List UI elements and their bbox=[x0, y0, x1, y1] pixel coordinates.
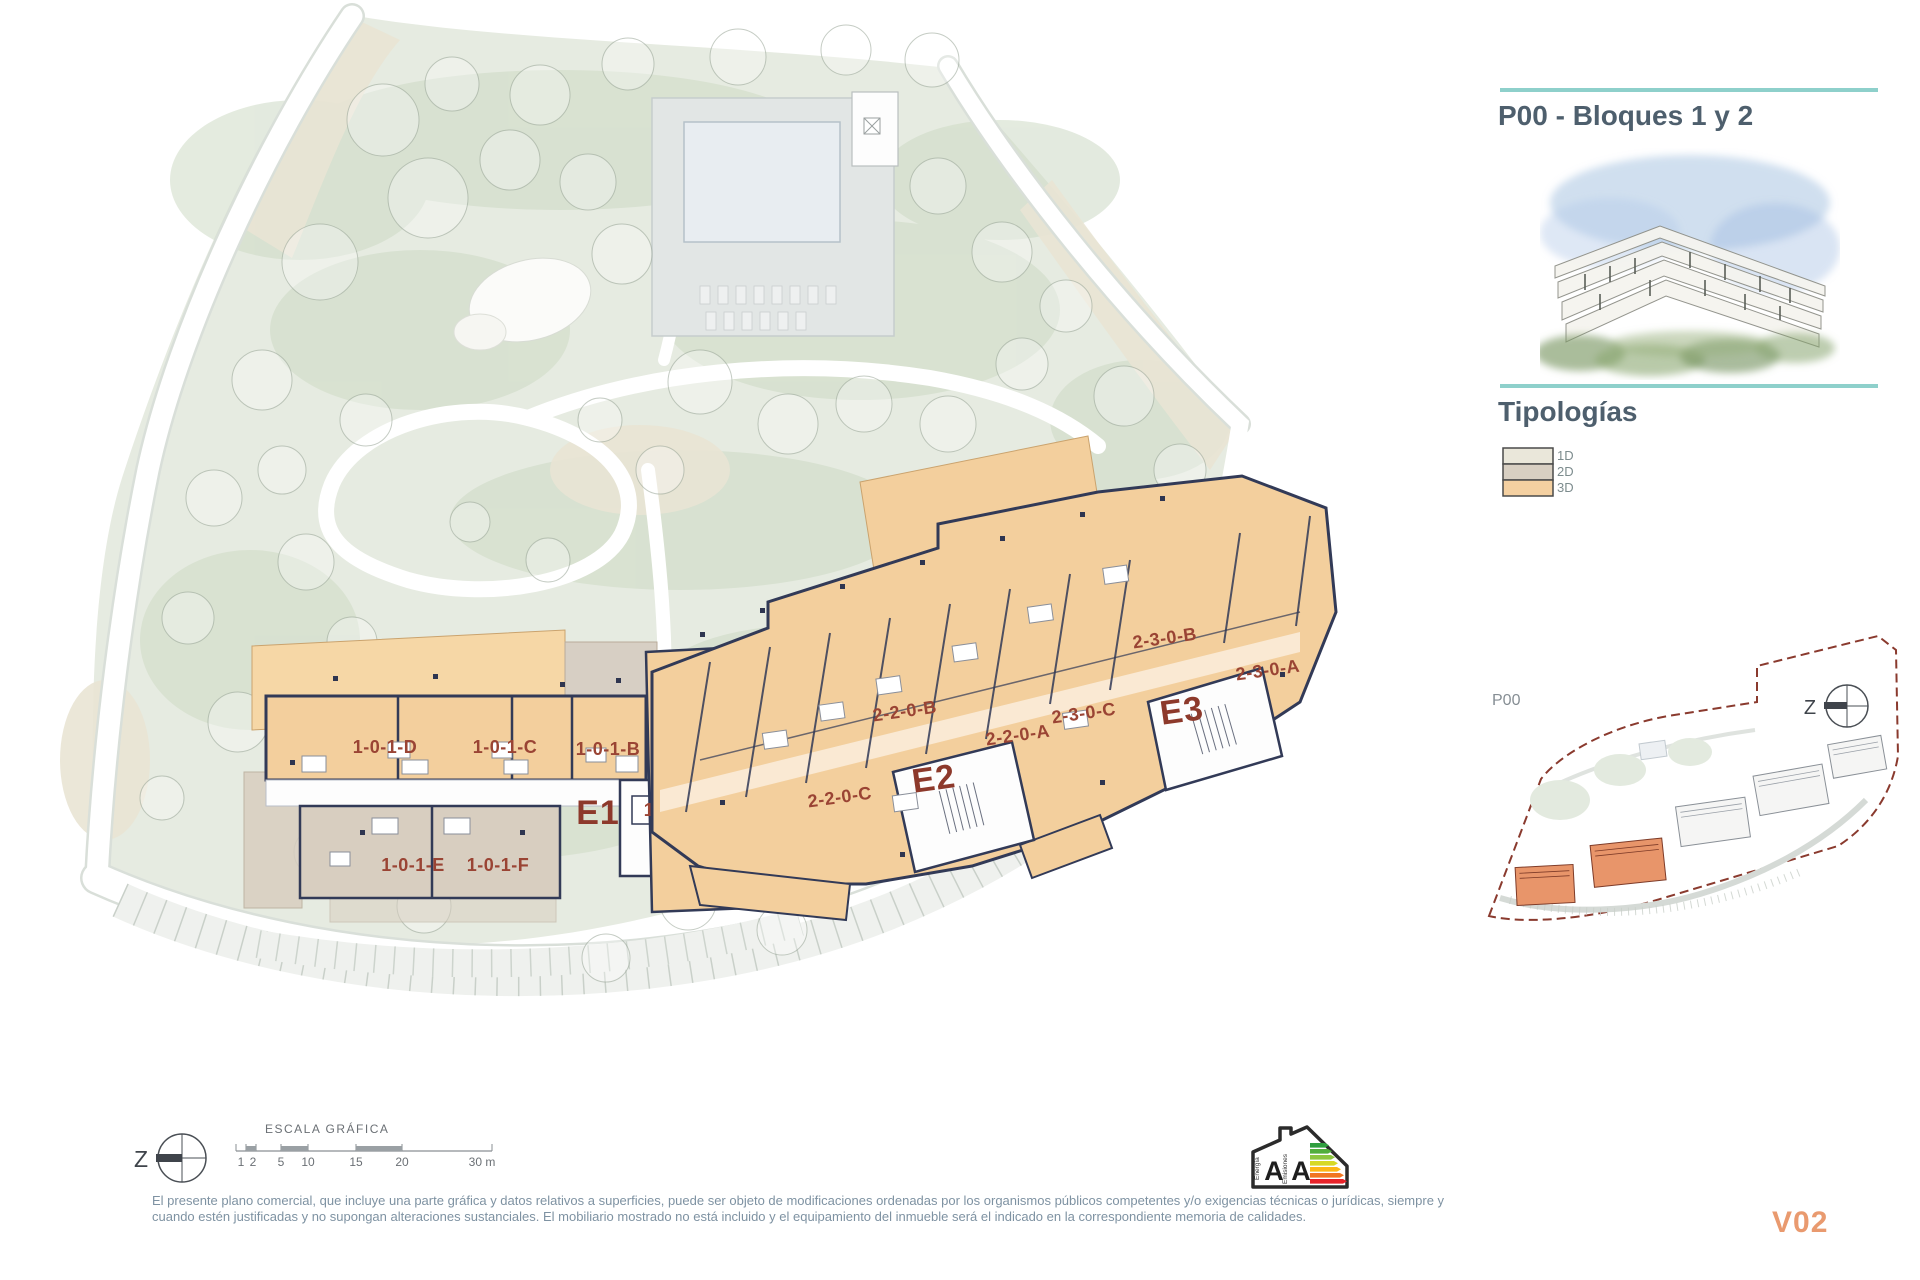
core-label-e3: E3 bbox=[1158, 689, 1206, 733]
legend-label-3d: 3D bbox=[1557, 479, 1574, 496]
legend-row-3d: 3D bbox=[1502, 479, 1574, 496]
typologies-legend: 1D 2D 3D bbox=[1502, 447, 1574, 496]
minimap-level-label: P00 bbox=[1492, 692, 1520, 710]
core-label-e1: E1 bbox=[576, 794, 620, 832]
legend-label-1d: 1D bbox=[1557, 447, 1574, 464]
scale-tick: 1 bbox=[238, 1155, 245, 1169]
scale-tick: 20 bbox=[395, 1155, 409, 1169]
scale-tick: 10 bbox=[301, 1155, 315, 1169]
minimap bbox=[1489, 636, 1898, 920]
emissions-axis-label: Emisiones bbox=[1282, 1153, 1289, 1184]
pool bbox=[684, 122, 840, 242]
legend-label-2d: 2D bbox=[1557, 463, 1574, 480]
scale-tick: 5 bbox=[278, 1155, 285, 1169]
energy-rating-icon: A A Energía Emisiones bbox=[1253, 1127, 1347, 1187]
energy-axis-label: Energía bbox=[1254, 1157, 1261, 1180]
unit-label-block1-e: 1-0-1-E bbox=[381, 855, 445, 875]
unit-label-block1-b: 1-0-1-B bbox=[576, 739, 641, 759]
building-render-image bbox=[1540, 148, 1840, 385]
scale-tick: 30 m bbox=[469, 1155, 496, 1169]
version-label: V02 bbox=[1772, 1206, 1828, 1240]
disclaimer: El presente plano comercial, que incluye… bbox=[152, 1193, 1452, 1225]
disclaimer-line-2: cuando estén justificadas y no supongan … bbox=[152, 1209, 1452, 1225]
unit-label-block1-c: 1-0-1-C bbox=[473, 737, 538, 757]
scale-bar: ESCALA GRÁFICA 1 2 5 10 15 20 30 m bbox=[236, 1121, 495, 1169]
page-title: P00 - Bloques 1 y 2 bbox=[1498, 100, 1753, 132]
minimap-pool bbox=[1639, 740, 1667, 759]
compass-icon: Z bbox=[134, 1134, 206, 1182]
disclaimer-line-1: El presente plano comercial, que incluye… bbox=[152, 1193, 1452, 1209]
scale-tick: 2 bbox=[250, 1155, 257, 1169]
legend-row-1d: 1D bbox=[1502, 447, 1574, 464]
pool-area bbox=[652, 92, 898, 336]
emissions-letter: A bbox=[1291, 1156, 1311, 1186]
typologies-heading: Tipologías bbox=[1498, 396, 1638, 428]
teal-rule-top bbox=[1500, 88, 1878, 92]
scale-bar-title: ESCALA GRÁFICA bbox=[265, 1121, 389, 1136]
energy-letter: A bbox=[1264, 1156, 1284, 1186]
legend-row-2d: 2D bbox=[1502, 463, 1574, 480]
core-label-e2: E2 bbox=[910, 757, 958, 801]
unit-label-block1-d: 1-0-1-D bbox=[353, 737, 418, 757]
legend-swatch-3d bbox=[1502, 479, 1554, 497]
page: 1-0-1-D 1-0-1-C 1-0-1-B 1-0-1-A 1-0-1-E … bbox=[0, 0, 1920, 1280]
compass-letter: Z bbox=[1804, 697, 1816, 719]
compass-letter: Z bbox=[134, 1146, 148, 1172]
vegetation bbox=[1540, 331, 1835, 376]
teal-rule-bottom bbox=[1500, 384, 1878, 388]
unit-label-block1-f: 1-0-1-F bbox=[467, 855, 530, 875]
scale-tick: 15 bbox=[349, 1155, 363, 1169]
